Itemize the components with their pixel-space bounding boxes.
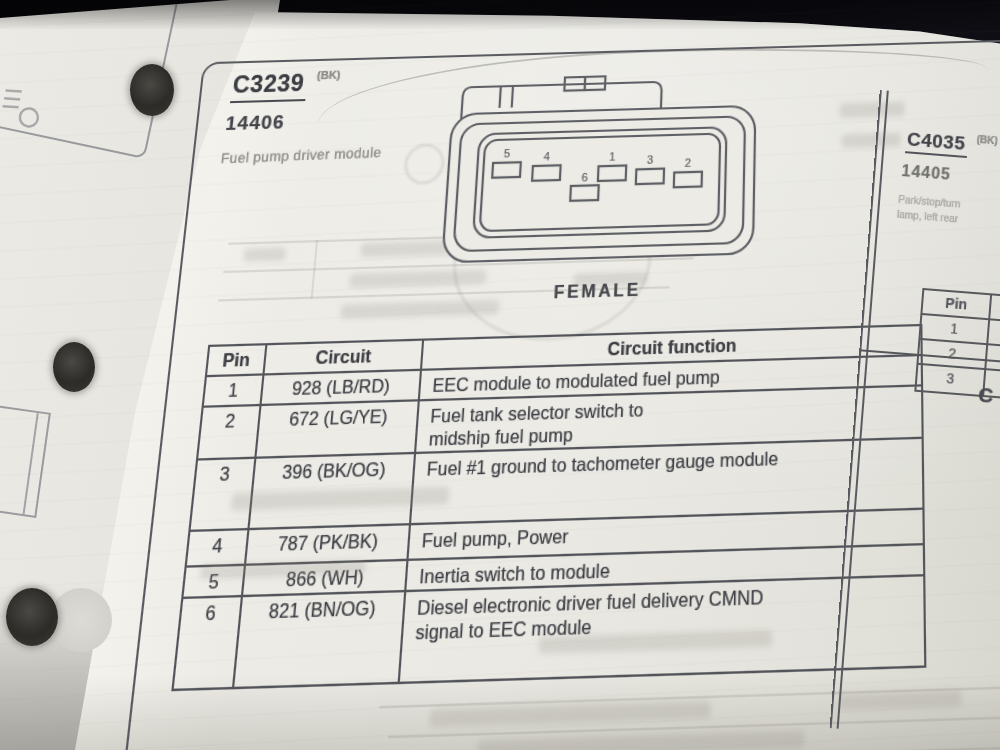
pinout-table: Pin Circuit Circuit function 1 928 (LB/R… [171,324,926,691]
adjacent-connector-description: Park/stop/turn lamp, left rear [897,192,961,227]
connector-heading: C3239(BK) [230,68,341,103]
adjacent-connector-id: C4035 [905,128,968,158]
photo-of-wiring-manual-page: C3239(BK) 14406 Fuel pump driver module [0,0,1000,750]
col-header-pin: Pin [207,345,267,377]
cell-circuit: 928 (LB/RD) [261,371,421,406]
binder-hole-bottom [6,588,58,646]
cell-pin: 2 [198,406,261,460]
adjacent-cell-pin: 3 [916,365,986,395]
cell-circuit: 787 (PK/BK) [246,525,411,566]
cell-pin: 5 [183,566,246,599]
cell-circuit: 672 (LG/YE) [256,401,419,458]
next-connector-id-partial: C [977,383,994,408]
pin-label-5: 5 [503,147,510,160]
adjacent-part-number: 14405 [901,162,952,184]
facing-page-partial-table-box [0,400,51,518]
connector-face-drawing: 5 4 6 1 3 2 [437,71,763,267]
adjacent-connector-color-code: (BK) [976,134,998,147]
pin-label-4: 4 [543,150,550,163]
pin-label-1: 1 [609,150,616,163]
part-number: 14406 [224,111,285,135]
cell-circuit: 821 (BN/OG) [234,592,406,687]
cell-circuit: 396 (BK/OG) [249,454,416,530]
cell-pin: 6 [174,597,243,688]
cell-pin: 3 [190,459,256,532]
cell-pin: 4 [187,530,250,568]
adjacent-connector-heading: C4035(BK) [905,128,998,160]
pin-label-3: 3 [647,153,654,166]
connector-color-code: (BK) [316,68,341,81]
col-header-circuit: Circuit [264,341,424,376]
connector-id: C3239 [230,69,309,103]
facing-page-partial-print-glyph [0,82,48,139]
binder-hole-middle [53,342,95,392]
pin-label-6: 6 [581,171,588,184]
pin-label-2: 2 [685,156,692,169]
cell-pin: 1 [204,376,265,408]
cell-circuit: 866 (WH) [243,561,409,597]
